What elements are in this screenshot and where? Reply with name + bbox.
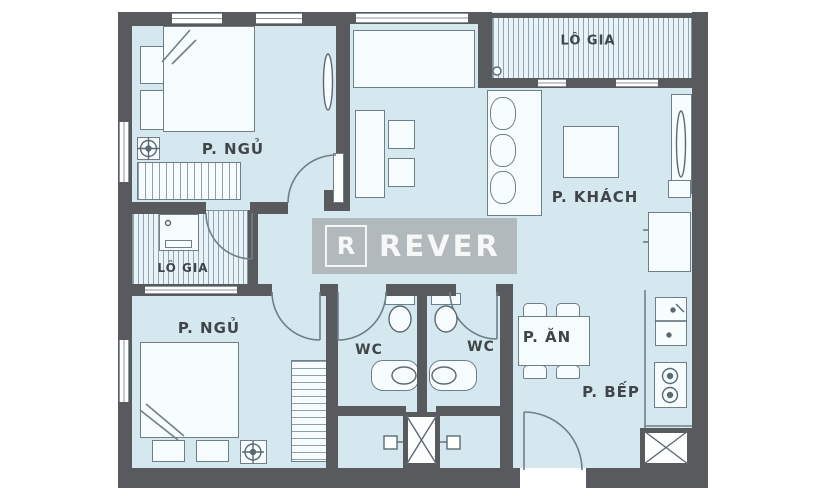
label-balcony-left: LÔ GIA [157,261,208,275]
rever-logo-icon: R [325,225,367,267]
plumbing-shaft-kitchen [640,428,692,468]
wall-wc-left [326,294,338,468]
wall-balcony-left-right [248,210,258,286]
refrigerator [648,212,691,272]
wall-wc-bottom-a [326,406,406,416]
console-end-box [668,180,691,198]
window-left-bedroom1 [119,122,129,182]
wardrobe-cabinet-b [140,90,164,130]
vanity-left [371,360,419,391]
wall-top-left [118,12,350,26]
desk-chair-a [388,120,415,149]
sofa-cushion-3 [490,171,516,204]
wall-bedroom1-bottom-a [130,202,206,214]
wardrobe-bottom-bedroom [291,360,327,462]
double-bed-top [163,26,255,132]
desk [355,110,385,198]
label-wc-right: WC [467,339,495,355]
wall-wc-bottom-b [436,406,513,416]
balcony-top-railing [480,13,692,18]
window-bedroom1-b [256,13,302,24]
ceiling-fan-box-top [137,137,160,160]
sofa-cushion-1 [490,97,516,130]
entrance-threshold [520,468,586,488]
vanity-right [429,360,477,391]
wall-right [692,12,708,488]
label-bedroom-bottom: P. NGỦ [178,319,240,337]
wall-balcony-top-bottom [480,78,692,88]
dining-chair-4 [556,365,580,379]
label-living: P. KHÁCH [552,188,639,206]
double-bed-bottom [140,342,239,438]
nightstand-b [196,440,229,462]
plumbing-shaft-center [403,412,440,468]
nightstand-a [152,440,185,462]
window-bedroom1-a [172,13,222,24]
label-dining: P. ĂN [523,328,571,346]
wall-bottom-right [586,468,708,488]
ceiling-fan-box-bottom [240,440,267,464]
wall-bottom-left [118,468,520,488]
sofa-cushion-2 [490,134,516,167]
label-kitchen: P. BẾP [582,383,640,401]
sliding-door-balcony-a [538,79,566,87]
rever-watermark: R REVER [312,218,517,274]
wall-dining [500,284,513,468]
window-hall [356,13,468,23]
dining-chair-1 [523,303,547,317]
kitchen-sink [655,297,687,346]
wall-wc-center [417,292,427,414]
label-bedroom-top: P. NGỦ [202,140,264,158]
hall-cabinet [353,30,475,88]
floorplan-canvas: P. NGỦ LÔ GIA P. KHÁCH LÔ GIA P. NGỦ WC … [0,0,824,500]
desk-chair-b [388,158,415,187]
stove [654,362,687,408]
door-leaf-bedroom1 [333,153,344,203]
dining-chair-3 [523,365,547,379]
window-balcony-left [145,286,237,294]
wardrobe-cabinet-a [140,46,164,84]
rever-brand-text: REVER [379,229,501,263]
tv-console [671,94,692,194]
washing-machine-screen [165,240,192,248]
wall-hall-balcony-top [478,12,492,88]
window-left-bedroom2 [119,340,129,402]
dresser-top-bedroom [137,162,241,200]
label-wc-left: WC [355,342,383,358]
dining-chair-2 [556,303,580,317]
label-balcony-top: LÔ GIA [561,34,616,49]
coffee-table [563,126,619,178]
sliding-door-balcony-b [616,79,658,87]
